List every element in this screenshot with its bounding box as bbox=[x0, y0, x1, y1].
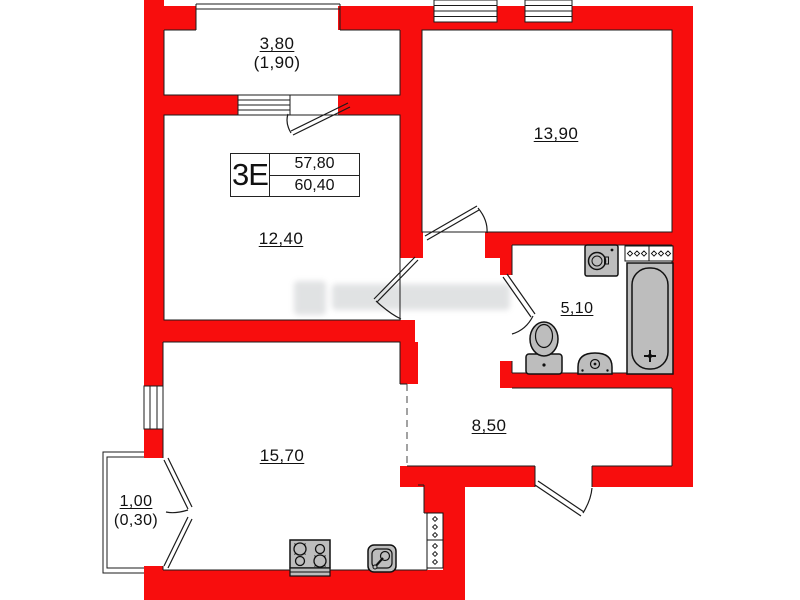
room-area-balcony-top: 3,80 bbox=[260, 34, 295, 54]
unit-area-total: 57,80 bbox=[270, 154, 359, 176]
room-area-bathroom: 5,10 bbox=[561, 300, 594, 318]
door-french-balcony bbox=[164, 458, 192, 568]
unit-area-sale: 60,40 bbox=[270, 176, 359, 197]
door-bathroom bbox=[503, 274, 535, 334]
window bbox=[238, 95, 290, 115]
stove-icon bbox=[290, 540, 330, 576]
room-area-balcony-bottom-reduced: (0,30) bbox=[114, 512, 158, 530]
room-area-living: 12,40 bbox=[259, 229, 304, 249]
door-balcony-top bbox=[287, 103, 350, 135]
washing-machine-icon bbox=[585, 245, 618, 276]
kitchen-sink-icon bbox=[368, 545, 396, 572]
vent-grille-icon bbox=[625, 246, 673, 261]
room-area-kitchen-living: 15,70 bbox=[260, 446, 305, 466]
window bbox=[434, 0, 497, 22]
hallway-outline bbox=[400, 384, 672, 487]
door-entrance bbox=[535, 481, 592, 516]
door-living bbox=[374, 257, 418, 319]
bathtub-icon bbox=[627, 263, 673, 374]
bath-sink-icon bbox=[578, 353, 612, 374]
door-bedroom bbox=[425, 206, 487, 240]
room-area-balcony-bottom: 1,00 bbox=[120, 493, 153, 511]
balcony-top-glazing bbox=[196, 4, 340, 30]
room-area-hallway: 8,50 bbox=[472, 416, 507, 436]
floor-plan: 3,80 (1,90) 13,90 12,40 5,10 8,50 15,70 … bbox=[0, 0, 800, 600]
unit-info-box: 3Е 57,80 60,40 bbox=[230, 153, 360, 197]
kitchen-vent-icon bbox=[427, 513, 443, 568]
toilet-icon bbox=[526, 322, 562, 374]
window bbox=[525, 0, 572, 22]
unit-type-label: 3Е bbox=[231, 154, 270, 196]
window bbox=[144, 386, 163, 429]
room-area-balcony-top-reduced: (1,90) bbox=[254, 53, 301, 73]
room-area-bedroom: 13,90 bbox=[534, 124, 579, 144]
room-living-outline bbox=[164, 115, 400, 320]
